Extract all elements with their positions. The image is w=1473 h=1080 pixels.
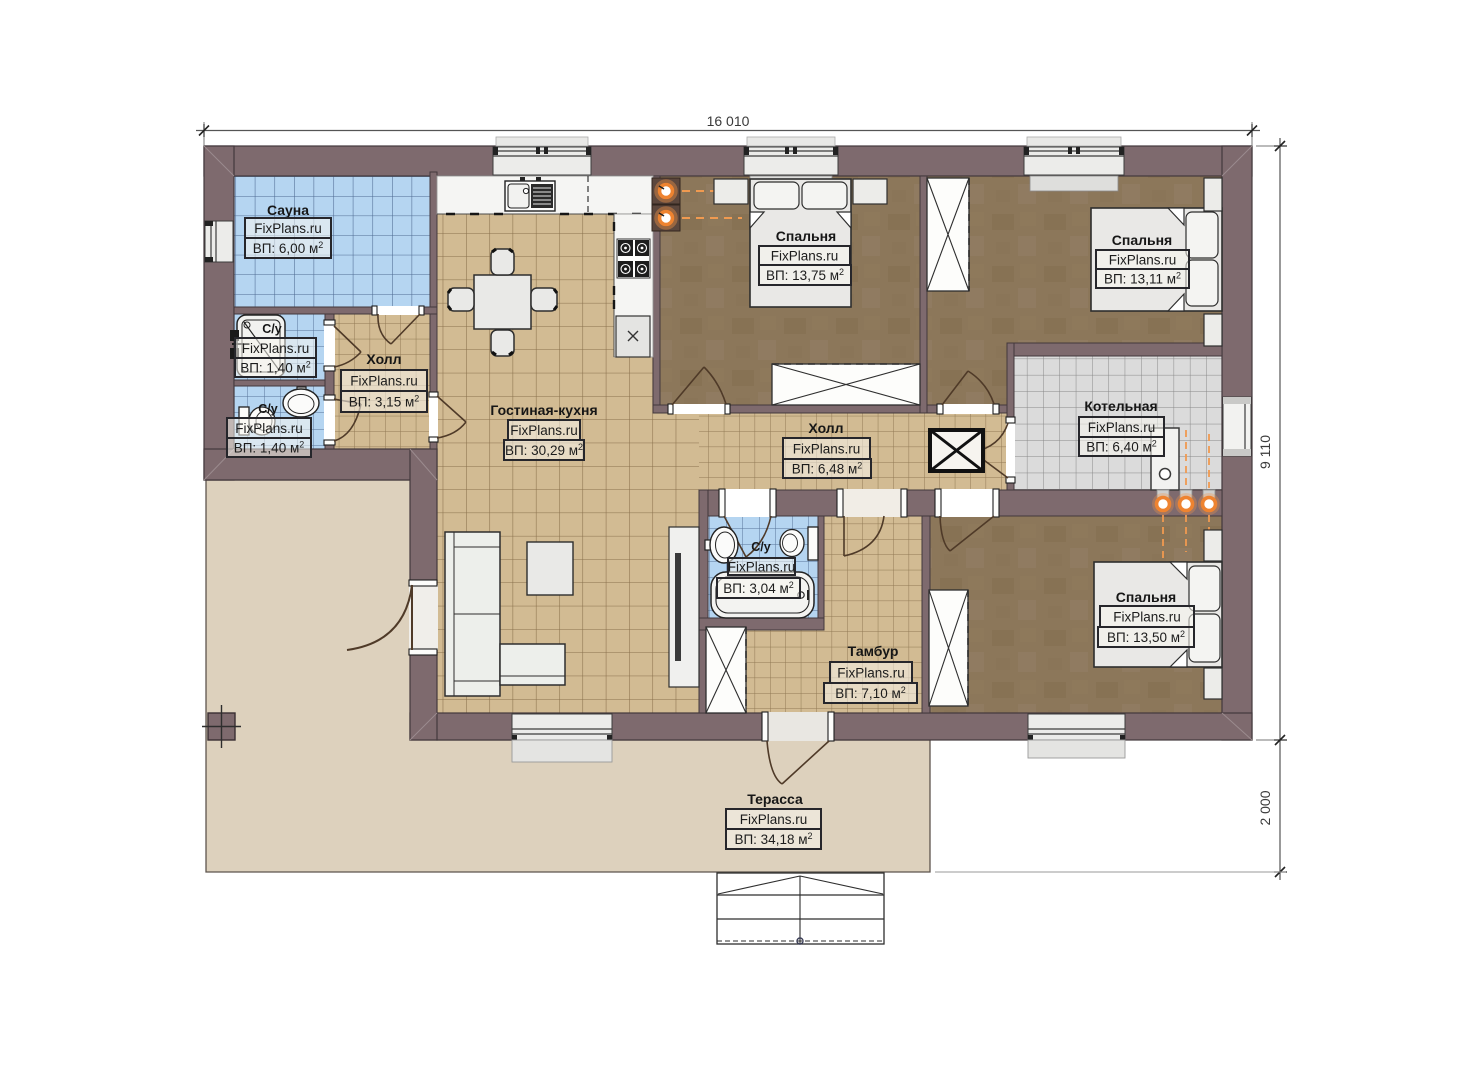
svg-text:FixPlans.ru: FixPlans.ru — [1088, 420, 1156, 435]
svg-text:FixPlans.ru: FixPlans.ru — [740, 812, 808, 827]
svg-text:ВП: 30,29 м2: ВП: 30,29 м2 — [505, 442, 583, 458]
svg-text:FixPlans.ru: FixPlans.ru — [510, 423, 578, 438]
svg-text:FixPlans.ru: FixPlans.ru — [235, 421, 303, 436]
svg-text:С/у: С/у — [258, 402, 278, 416]
svg-text:ВП: 1,40 м2: ВП: 1,40 м2 — [240, 360, 311, 376]
svg-text:ВП: 6,00 м2: ВП: 6,00 м2 — [253, 240, 324, 256]
svg-text:Спальня: Спальня — [776, 228, 836, 244]
svg-text:FixPlans.ru: FixPlans.ru — [793, 442, 861, 457]
svg-text:ВП: 7,10 м2: ВП: 7,10 м2 — [835, 685, 906, 701]
svg-text:Гостиная-кухня: Гостиная-кухня — [490, 402, 597, 418]
svg-text:С/у: С/у — [751, 540, 771, 554]
svg-text:ВП: 3,04 м2: ВП: 3,04 м2 — [723, 580, 794, 596]
svg-text:ВП: 6,40 м2: ВП: 6,40 м2 — [1086, 439, 1157, 455]
svg-text:FixPlans.ru: FixPlans.ru — [1109, 253, 1177, 268]
svg-text:16 010: 16 010 — [707, 113, 750, 129]
svg-text:FixPlans.ru: FixPlans.ru — [254, 221, 322, 236]
svg-text:ВП: 3,15 м2: ВП: 3,15 м2 — [349, 394, 420, 410]
svg-text:Холл: Холл — [808, 420, 843, 436]
svg-text:ВП: 13,50 м2: ВП: 13,50 м2 — [1107, 629, 1185, 645]
svg-text:Холл: Холл — [366, 351, 401, 367]
svg-text:Спальня: Спальня — [1112, 232, 1172, 248]
svg-text:9 110: 9 110 — [1257, 435, 1273, 469]
svg-text:ВП: 13,11 м2: ВП: 13,11 м2 — [1104, 271, 1181, 287]
svg-text:2 000: 2 000 — [1257, 790, 1273, 825]
svg-text:Терасса: Терасса — [747, 791, 803, 807]
svg-text:ВП: 1,40 м2: ВП: 1,40 м2 — [234, 440, 305, 456]
svg-text:С/у: С/у — [262, 322, 282, 336]
svg-text:ВП: 13,75 м2: ВП: 13,75 м2 — [766, 267, 844, 283]
svg-text:Тамбур: Тамбур — [848, 643, 899, 659]
svg-text:Сауна: Сауна — [267, 202, 309, 218]
svg-text:ВП: 6,48 м2: ВП: 6,48 м2 — [792, 461, 863, 477]
svg-text:FixPlans.ru: FixPlans.ru — [1113, 610, 1181, 625]
svg-text:Спальня: Спальня — [1116, 589, 1176, 605]
svg-text:FixPlans.ru: FixPlans.ru — [728, 560, 796, 575]
svg-text:ВП: 34,18 м2: ВП: 34,18 м2 — [734, 831, 812, 847]
svg-text:Котельная: Котельная — [1084, 398, 1157, 414]
svg-text:FixPlans.ru: FixPlans.ru — [771, 249, 839, 264]
svg-text:FixPlans.ru: FixPlans.ru — [350, 374, 418, 389]
svg-text:FixPlans.ru: FixPlans.ru — [837, 666, 905, 681]
svg-text:FixPlans.ru: FixPlans.ru — [242, 341, 310, 356]
